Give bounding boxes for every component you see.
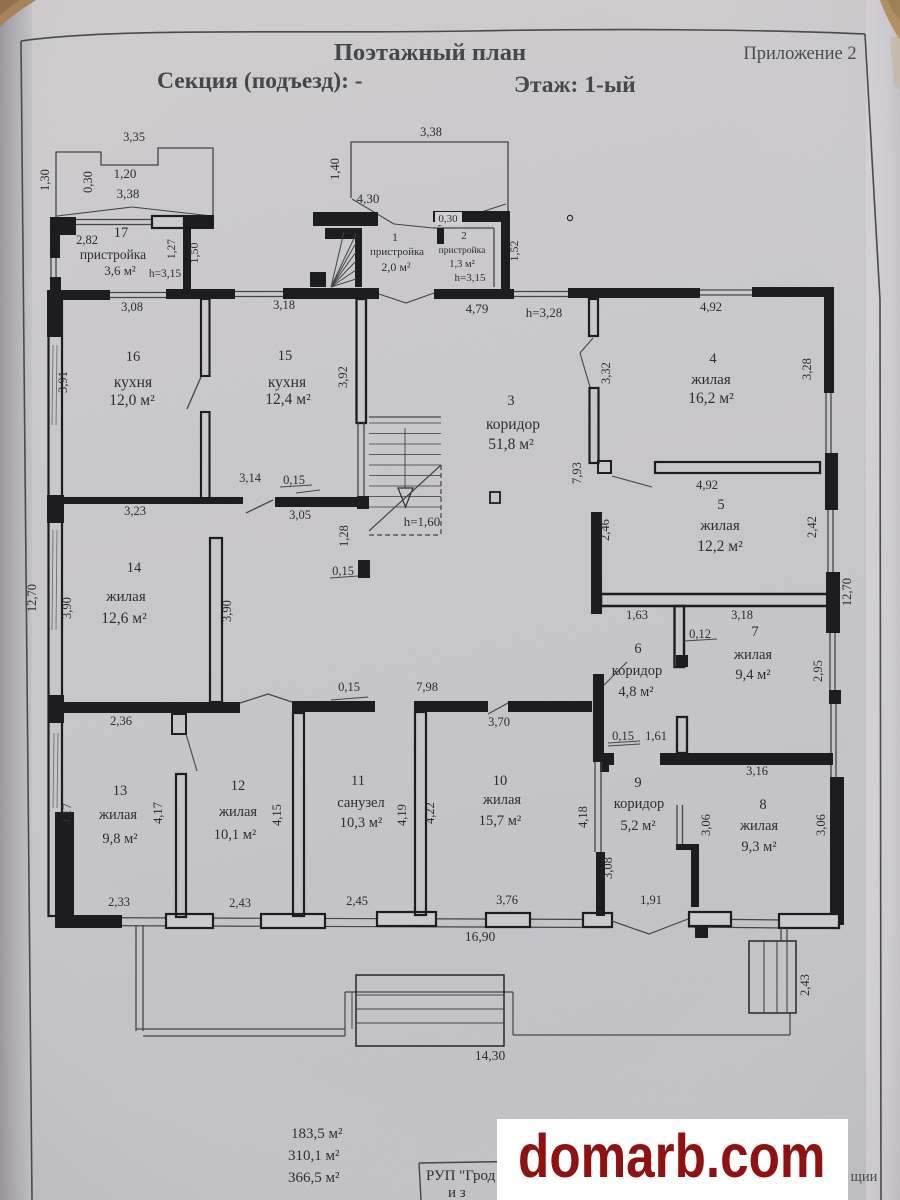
svg-text:0,15: 0,15 [338,680,360,694]
svg-text:7,98: 7,98 [416,680,438,694]
svg-text:жилая: жилая [98,807,137,823]
svg-text:15: 15 [278,348,293,364]
svg-text:7,93: 7,93 [570,462,584,484]
svg-text:3,08: 3,08 [121,300,143,314]
svg-text:1,40: 1,40 [328,158,342,180]
svg-text:9,4 м²: 9,4 м² [735,667,771,683]
svg-text:пристройка: пристройка [370,246,424,258]
svg-text:4,22: 4,22 [423,802,437,824]
svg-text:14,30: 14,30 [475,1048,506,1063]
svg-text:жилая: жилая [733,647,772,663]
svg-text:2,42: 2,42 [805,516,819,538]
svg-text:2,95: 2,95 [811,660,825,682]
svg-text:0,30: 0,30 [438,213,458,225]
svg-text:6: 6 [634,641,641,657]
svg-text:Поэтажный план: Поэтажный план [334,39,526,66]
svg-text:1,20: 1,20 [114,166,137,181]
svg-text:domarb.com: domarb.com [518,1122,825,1190]
svg-text:9,8 м²: 9,8 м² [102,831,138,847]
svg-text:0,12: 0,12 [689,627,711,641]
svg-text:жилая: жилая [739,818,778,834]
svg-text:12,70: 12,70 [25,584,39,612]
svg-text:4,15: 4,15 [270,804,284,826]
svg-text:5,2 м²: 5,2 м² [620,818,656,834]
svg-text:h=3,15: h=3,15 [149,268,182,280]
svg-text:0,15: 0,15 [332,564,354,578]
svg-text:15,7 м²: 15,7 м² [479,813,522,829]
svg-text:4,8 м²: 4,8 м² [618,684,654,700]
svg-text:кухня: кухня [268,374,306,391]
svg-text:2,33: 2,33 [108,895,130,909]
svg-text:кухня: кухня [114,374,152,391]
svg-text:3,70: 3,70 [488,715,510,729]
svg-text:3,08: 3,08 [601,857,615,879]
svg-text:1,52: 1,52 [507,241,521,262]
svg-text:3,18: 3,18 [731,608,753,622]
svg-text:Приложение 2: Приложение 2 [743,44,856,64]
svg-text:h=3,28: h=3,28 [526,305,563,320]
svg-text:16,90: 16,90 [465,929,496,944]
svg-text:жилая: жилая [690,372,731,388]
svg-text:3,35: 3,35 [123,130,145,144]
svg-text:310,1 м²: 310,1 м² [288,1148,340,1164]
svg-text:жилая: жилая [699,518,740,534]
svg-text:пристройка: пристройка [80,247,146,262]
svg-text:3,32: 3,32 [599,362,613,384]
svg-text:4,19: 4,19 [395,804,409,826]
svg-text:10: 10 [493,773,508,789]
svg-text:3,06: 3,06 [699,814,713,836]
svg-text:9,3 м²: 9,3 м² [741,839,777,855]
svg-text:щии: щии [851,1169,878,1185]
svg-text:3,90: 3,90 [60,597,74,619]
svg-text:и з: и з [448,1185,466,1200]
svg-text:3,14: 3,14 [239,471,262,485]
svg-text:17: 17 [114,225,129,241]
svg-text:4,17: 4,17 [151,802,165,824]
svg-text:4,18: 4,18 [576,806,590,828]
svg-text:пристройка: пристройка [439,245,486,256]
svg-text:12,4 м²: 12,4 м² [265,391,311,408]
svg-text:1: 1 [392,230,398,244]
svg-text:Секция (подъезд): -: Секция (подъезд): - [157,68,363,94]
svg-text:51,8 м²: 51,8 м² [488,436,534,453]
svg-text:4,79: 4,79 [466,301,489,316]
svg-text:санузел: санузел [337,795,384,811]
svg-text:2: 2 [461,230,467,242]
svg-text:9: 9 [634,775,641,791]
svg-text:2,43: 2,43 [798,974,812,996]
svg-text:коридор: коридор [614,796,664,812]
svg-text:0,30: 0,30 [81,171,95,193]
svg-text:3,38: 3,38 [117,186,140,201]
svg-text:14: 14 [127,560,142,576]
svg-text:3,76: 3,76 [496,893,518,907]
svg-text:жилая: жилая [105,589,146,605]
svg-text:3,90: 3,90 [220,600,234,622]
svg-text:16,2 м²: 16,2 м² [688,390,734,407]
svg-text:7: 7 [751,624,758,640]
svg-text:3,05: 3,05 [289,508,311,522]
svg-text:3: 3 [507,393,514,409]
svg-text:3,92: 3,92 [336,366,350,388]
svg-text:2,46: 2,46 [598,519,612,541]
svg-text:2,36: 2,36 [110,714,132,728]
svg-text:2,82: 2,82 [76,233,98,247]
svg-text:4,17: 4,17 [60,803,74,825]
svg-text:2,45: 2,45 [346,894,368,908]
svg-text:12,70: 12,70 [840,578,854,606]
svg-text:4: 4 [709,351,717,367]
svg-text:3,23: 3,23 [124,504,146,518]
svg-text:коридор: коридор [612,663,662,679]
svg-text:4,92: 4,92 [700,300,722,314]
svg-text:3,18: 3,18 [273,298,295,312]
svg-text:2,0 м²: 2,0 м² [381,260,411,274]
svg-text:1,28: 1,28 [337,525,351,547]
svg-text:11: 11 [351,773,365,789]
svg-text:РУП "Грод: РУП "Грод [426,1168,496,1184]
svg-text:3,38: 3,38 [420,125,442,139]
svg-text:2,43: 2,43 [229,896,251,910]
svg-text:коридор: коридор [486,416,540,433]
svg-text:1,27: 1,27 [166,239,178,259]
svg-text:10,1 м²: 10,1 м² [214,827,257,843]
svg-text:0,15: 0,15 [283,473,305,487]
svg-text:1,30: 1,30 [38,169,52,191]
svg-text:1,3 м²: 1,3 м² [449,259,475,270]
svg-text:3,28: 3,28 [800,358,814,380]
svg-text:жилая: жилая [218,804,257,820]
svg-text:1,63: 1,63 [626,608,648,622]
svg-text:0,15: 0,15 [612,729,634,743]
svg-text:Этаж: 1-ый: Этаж: 1-ый [514,72,636,98]
svg-text:183,5 м²: 183,5 м² [291,1126,343,1142]
svg-text:12,0 м²: 12,0 м² [109,392,155,409]
svg-text:4,30: 4,30 [357,191,380,206]
svg-text:3,06: 3,06 [814,814,828,836]
svg-text:3,6 м²: 3,6 м² [104,263,136,278]
svg-text:h=3,15: h=3,15 [455,272,486,284]
svg-text:12: 12 [231,778,246,794]
svg-text:366,5 м²: 366,5 м² [288,1170,340,1186]
svg-text:4,92: 4,92 [696,478,718,492]
svg-text:h=1,60: h=1,60 [404,514,441,529]
svg-text:5: 5 [717,497,724,513]
svg-text:1,91: 1,91 [640,893,662,907]
svg-text:16: 16 [126,349,141,365]
svg-text:8: 8 [759,797,766,813]
svg-text:3,91: 3,91 [56,371,70,393]
svg-text:1,61: 1,61 [645,729,667,743]
svg-text:12,2 м²: 12,2 м² [697,538,743,555]
svg-text:10,3 м²: 10,3 м² [340,815,383,831]
svg-text:жилая: жилая [482,792,521,808]
svg-text:13: 13 [113,783,128,799]
svg-text:3,16: 3,16 [746,764,768,778]
svg-text:12,6 м²: 12,6 м² [101,610,147,627]
svg-text:1,50: 1,50 [187,243,201,264]
